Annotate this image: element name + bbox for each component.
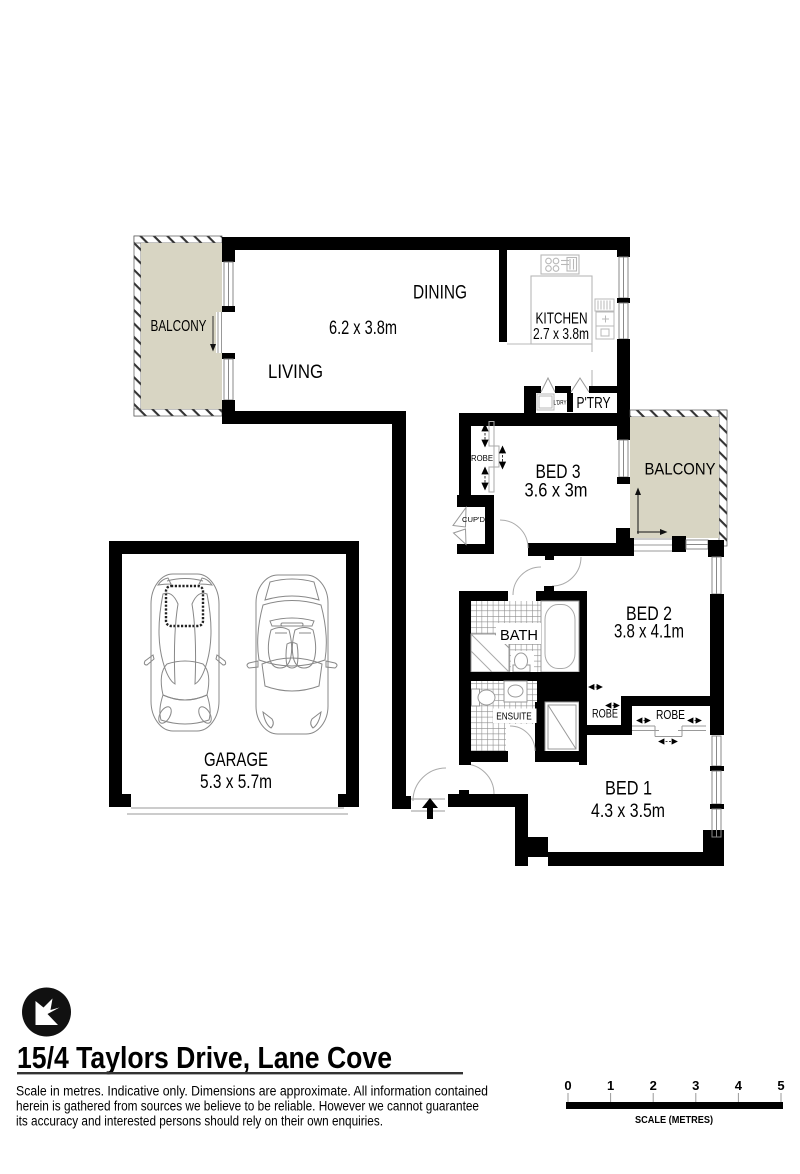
svg-text:3.8 x 4.1m: 3.8 x 4.1m: [614, 622, 684, 643]
svg-text:ROBE: ROBE: [471, 454, 493, 463]
svg-text:5: 5: [777, 1078, 784, 1093]
svg-text:2: 2: [650, 1078, 657, 1093]
svg-text:L'DRY: L'DRY: [554, 401, 567, 407]
svg-text:BALCONY: BALCONY: [645, 461, 716, 479]
svg-text:LIVING: LIVING: [268, 361, 323, 383]
svg-text:5.3 x 5.7m: 5.3 x 5.7m: [200, 771, 272, 793]
svg-text:CUP'D: CUP'D: [462, 515, 485, 524]
svg-text:herein is gathered from source: herein is gathered from sources we belie…: [16, 1099, 479, 1114]
svg-text:DINING: DINING: [413, 282, 467, 304]
svg-text:15/4 Taylors Drive, Lane Cove: 15/4 Taylors Drive, Lane Cove: [17, 1040, 392, 1075]
svg-text:3: 3: [692, 1078, 699, 1093]
svg-text:3.6 x 3m: 3.6 x 3m: [525, 481, 588, 502]
svg-text:Scale in metres. Indicative on: Scale in metres. Indicative only. Dimens…: [16, 1084, 488, 1099]
svg-text:BALCONY: BALCONY: [151, 318, 207, 335]
svg-text:ENSUITE: ENSUITE: [496, 712, 532, 723]
svg-text:ROBE: ROBE: [592, 709, 618, 721]
svg-text:KITCHEN: KITCHEN: [536, 311, 588, 328]
svg-text:BED 1: BED 1: [605, 779, 652, 800]
svg-text:2.7 x 3.8m: 2.7 x 3.8m: [533, 326, 589, 343]
svg-text:ROBE: ROBE: [656, 707, 685, 722]
svg-text:BATH: BATH: [500, 627, 538, 644]
svg-text:6.2 x 3.8m: 6.2 x 3.8m: [329, 317, 397, 339]
svg-text:GARAGE: GARAGE: [204, 749, 268, 771]
svg-text:4.3 x 3.5m: 4.3 x 3.5m: [591, 801, 665, 822]
svg-text:P'TRY: P'TRY: [577, 395, 611, 412]
svg-text:0: 0: [564, 1078, 571, 1093]
svg-text:its accuracy and interested pe: its accuracy and interested persons shou…: [16, 1114, 383, 1129]
svg-text:SCALE (METRES): SCALE (METRES): [635, 1114, 713, 1126]
svg-text:1: 1: [607, 1078, 614, 1093]
svg-text:4: 4: [735, 1078, 743, 1093]
